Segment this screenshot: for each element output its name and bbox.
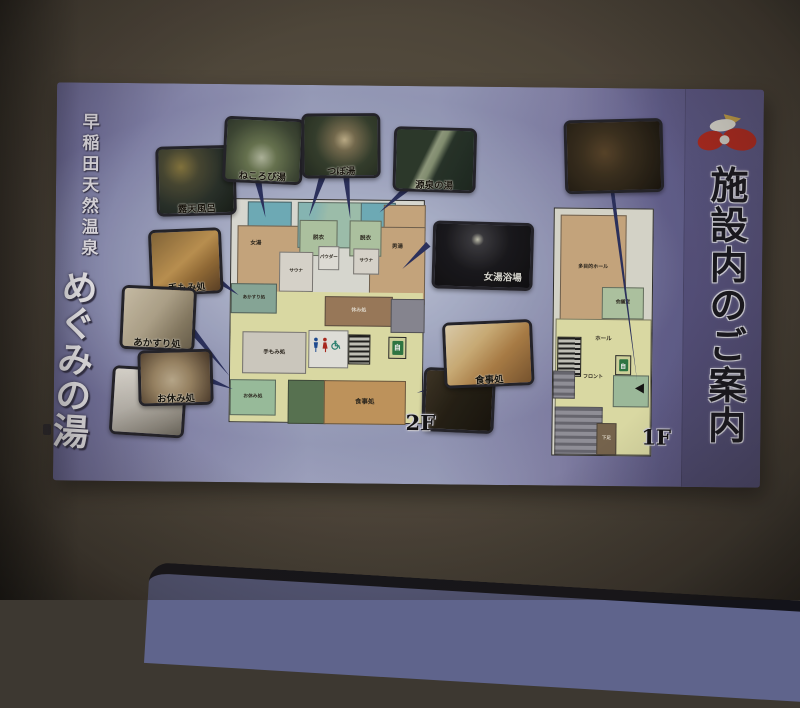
vending-icon: 自: [619, 359, 628, 371]
photo-caption: 露天風呂: [160, 200, 234, 216]
photo-image: [567, 121, 662, 191]
floorplan-1f: 多目的ホール 会議室 ホール フロント 自 下足: [551, 208, 654, 457]
room-sauna-left: サウナ: [279, 252, 313, 292]
vending-machine-2f: 自: [388, 337, 406, 359]
floor-2f-label: 2F: [405, 410, 435, 435]
photo-caption: お休み処: [141, 390, 210, 406]
photo-caption: ねころび湯: [225, 167, 300, 184]
entrance-arrow-icon: [635, 383, 644, 393]
photo-caption: つぼ湯: [305, 163, 378, 178]
title-panel: 施設内のご案内: [681, 89, 764, 488]
room-powder-corner: パウダー: [318, 246, 339, 270]
brand-title-main: めぐみの湯: [48, 268, 96, 460]
female-icon: [321, 337, 328, 353]
photo-caption: 女湯浴場: [484, 269, 522, 284]
shokuji-photo: 食事処: [442, 319, 535, 389]
onnayu-photo: 女湯浴場: [431, 220, 534, 291]
room-gray-right: [390, 299, 424, 333]
restroom-icons: [312, 337, 340, 353]
room-rest-area: 休み処: [325, 296, 393, 327]
megumi-logo-icon: [697, 115, 757, 158]
floor-1f-label: 1F: [641, 424, 671, 449]
room-geta: 下足: [596, 423, 616, 455]
male-icon: [312, 337, 319, 353]
stairs-2f: [348, 334, 370, 364]
tsuboyu-photo: つぼ湯: [301, 113, 380, 179]
room-gray-1f: [553, 371, 575, 399]
room-akasuri: あかすり処: [231, 283, 277, 313]
floorplan-2f: 女湯 男湯 露天 脱衣 脱衣 サウナ サウナ パウダー 休み処 あかすり処 手も…: [229, 198, 425, 424]
panel-title: 施設内のご案内: [690, 165, 755, 478]
room-sauna-right: サウナ: [353, 248, 379, 274]
nekorobiyu-photo: ねころび湯: [222, 116, 305, 186]
photo-caption: 食事処: [447, 370, 532, 388]
room-oyasumi: お休み処: [230, 379, 276, 415]
wheelchair-icon: [330, 339, 340, 351]
front-desk-label: フロント: [583, 375, 603, 381]
room-meeting: 会議室: [602, 287, 644, 319]
room-dark-green: [288, 380, 326, 424]
photo-caption: あかすり処: [122, 334, 192, 351]
room-temomi: 手もみ処: [242, 331, 306, 374]
photo-scene: 早稲田天然温泉 めぐみの湯 施設内のご案内: [0, 0, 800, 600]
facility-guide-sign: 早稲田天然温泉 めぐみの湯 施設内のご案内: [53, 82, 763, 487]
gensen-photo: 源泉の湯: [392, 126, 477, 193]
akasuri-photo: あかすり処: [119, 285, 197, 352]
photo-caption: 源泉の湯: [395, 176, 472, 192]
vending-icon: 自: [392, 341, 403, 355]
room-dining: 食事処: [324, 380, 406, 425]
relax-room-photo: [563, 118, 664, 194]
vending-machine-1f: 自: [615, 355, 631, 375]
logo-gap: [719, 135, 729, 144]
oyasumi-photo: お休み処: [137, 349, 213, 407]
restroom-2f: [308, 330, 348, 368]
